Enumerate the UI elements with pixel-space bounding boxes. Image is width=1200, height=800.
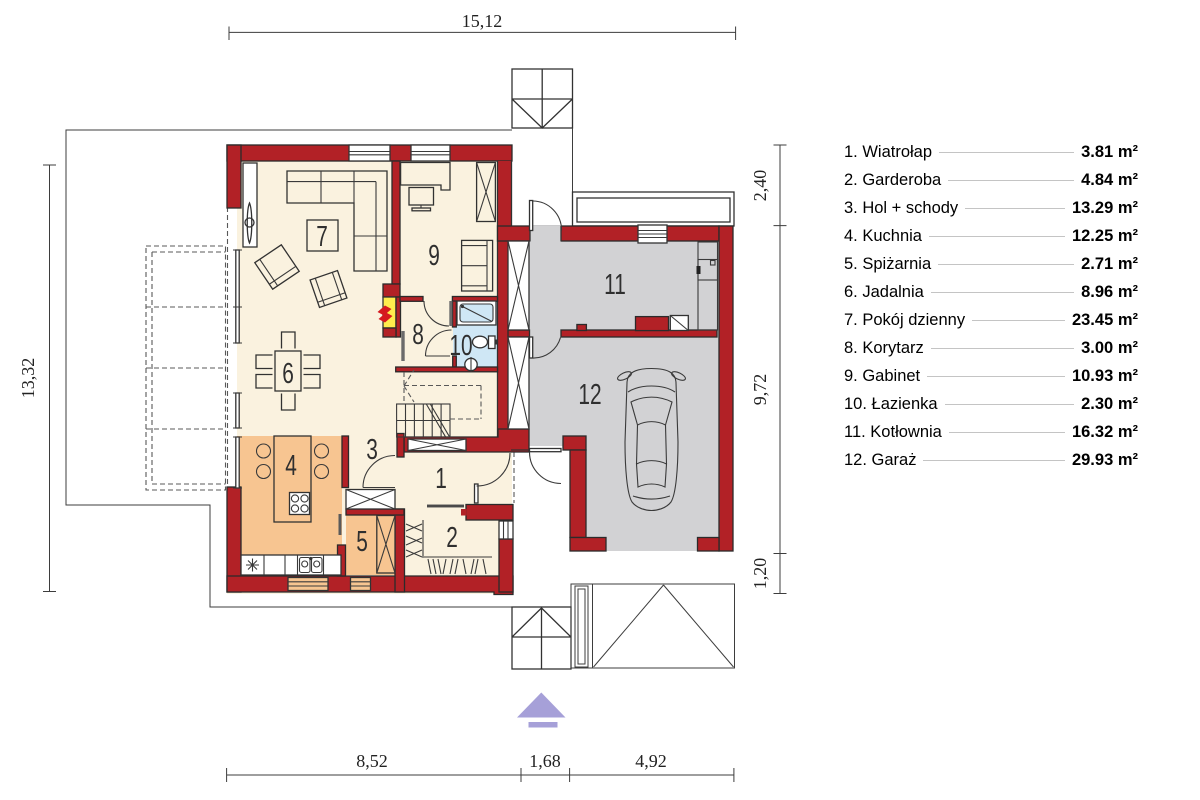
svg-text:9: 9 (428, 240, 440, 272)
svg-text:8,52: 8,52 (356, 751, 388, 771)
svg-text:4,92: 4,92 (635, 751, 667, 771)
svg-text:11: 11 (604, 269, 626, 301)
svg-text:10: 10 (449, 330, 472, 362)
svg-text:15,12: 15,12 (462, 11, 503, 31)
svg-text:13,32: 13,32 (18, 358, 38, 399)
svg-text:12: 12 (578, 379, 601, 411)
svg-text:1,20: 1,20 (750, 558, 770, 590)
svg-text:4: 4 (285, 450, 297, 482)
svg-text:9,72: 9,72 (750, 374, 770, 406)
svg-text:2,40: 2,40 (750, 170, 770, 202)
svg-text:6: 6 (282, 358, 294, 390)
svg-text:7: 7 (316, 221, 328, 253)
svg-text:8: 8 (412, 319, 424, 351)
svg-text:1,68: 1,68 (529, 751, 561, 771)
svg-text:3: 3 (366, 434, 378, 466)
svg-text:5: 5 (356, 526, 368, 558)
svg-text:1: 1 (435, 463, 447, 495)
svg-text:2: 2 (446, 522, 458, 554)
